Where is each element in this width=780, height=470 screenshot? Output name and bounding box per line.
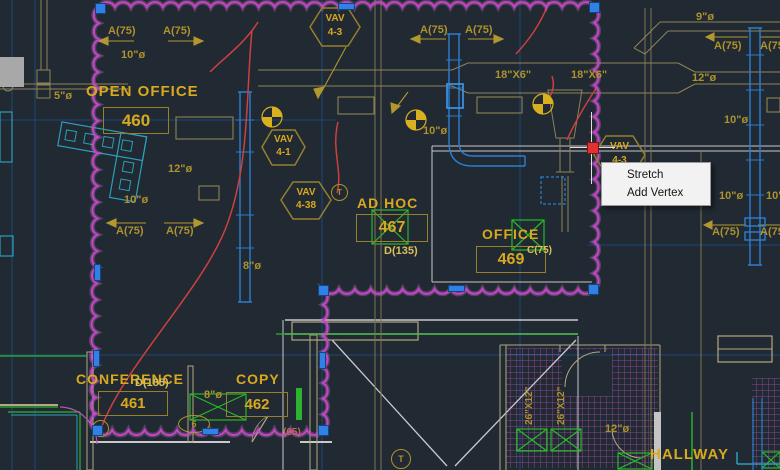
duct-size-label: 10"ø	[121, 49, 145, 61]
duct-size-label: 18"X6"	[571, 69, 607, 81]
neighbor-unit-block	[0, 57, 24, 87]
damper-symbols	[262, 94, 553, 130]
vav-tag-4-38: VAV 4-38	[280, 181, 332, 220]
airflow-label: A(75)	[712, 226, 740, 238]
cloud-midpoint-grip[interactable]	[319, 352, 326, 369]
room-number-462: 462	[226, 392, 288, 417]
airflow-label: A(75)	[163, 25, 191, 37]
duct-size-label: 12"ø	[605, 423, 629, 435]
duct-size-label: 10"ø	[423, 125, 447, 137]
duct-size-label: 18"X6"	[495, 69, 531, 81]
cloud-grip[interactable]	[589, 2, 600, 13]
vav-tag-4-3: VAV 4-3	[309, 7, 361, 47]
cloud-grip[interactable]	[318, 425, 329, 436]
thermostat-tag: T	[331, 184, 348, 201]
duct-size-label: 12"ø	[168, 163, 192, 175]
airflow-label: A(75)	[760, 40, 780, 52]
duct-size-label: 10"ø	[124, 194, 148, 206]
room-label-copy: COPY	[236, 371, 280, 387]
airflow-label: A(75)	[714, 40, 742, 52]
room-label-open-office: OPEN OFFICE	[86, 83, 199, 100]
airflow-label: A(75)	[465, 24, 493, 36]
duct-size-label: 10"ø	[719, 190, 743, 202]
room-label-hallway: HALLWAY	[650, 446, 729, 463]
duct-size-label: 8"ø	[204, 389, 222, 401]
cloud-grip[interactable]	[92, 425, 103, 436]
thermostat-tag: T	[391, 449, 411, 469]
cloud-midpoint-grip[interactable]	[448, 285, 465, 292]
hot-grip-selected[interactable]	[587, 142, 599, 154]
room-label-office: OFFICE	[482, 226, 539, 242]
diffuser-tag-d185: D(185)	[135, 377, 169, 389]
autocad-drawing-canvas[interactable]: OPEN OFFICE 460 AD HOC 467 OFFICE 469 C(…	[0, 0, 780, 470]
room-label-ad-hoc: AD HOC	[357, 195, 418, 211]
room-number-461: 461	[98, 391, 168, 416]
duct-size-label: 10"ø	[724, 114, 748, 126]
diffuser-tag-d135: D(135)	[384, 245, 418, 257]
duct-size-label: 12"ø	[692, 72, 716, 84]
cloud-midpoint-grip[interactable]	[94, 264, 101, 281]
menu-item-add-vertex[interactable]: Add Vertex	[602, 184, 710, 202]
airflow-label: A(75)	[420, 24, 448, 36]
duct-size-label: 10"ø	[766, 190, 780, 202]
duct-size-label: 5"ø	[54, 90, 72, 102]
cloud-midpoint-grip[interactable]	[338, 3, 355, 10]
room-number-467: 467	[356, 214, 428, 242]
airflow-label: A(75)	[108, 25, 136, 37]
duct-size-label-rotated: 26"X12"	[524, 387, 535, 425]
cloud-grip[interactable]	[588, 284, 599, 295]
airflow-label: A(75)	[760, 226, 780, 238]
cloud-grip[interactable]	[318, 285, 329, 296]
menu-item-stretch[interactable]: Stretch	[602, 166, 710, 184]
grip-context-menu: Stretch Add Vertex	[601, 162, 711, 206]
cloud-grip[interactable]	[95, 3, 106, 14]
airflow-label: A(75)	[116, 225, 144, 237]
vav-tag-4-1: VAV 4-1	[261, 129, 306, 166]
cloud-midpoint-grip[interactable]	[202, 428, 219, 435]
duct-size-label-rotated: 26"X12"	[556, 387, 567, 425]
note-65: (65)	[283, 427, 301, 438]
duct-size-label: 8"ø	[243, 260, 261, 272]
room-number-460: 460	[103, 107, 169, 134]
diffuser-tag-c75: C(75)	[527, 245, 552, 256]
airflow-label: A(75)	[166, 225, 194, 237]
cloud-midpoint-grip[interactable]	[93, 350, 100, 367]
duct-size-label: 9"ø	[696, 11, 714, 23]
